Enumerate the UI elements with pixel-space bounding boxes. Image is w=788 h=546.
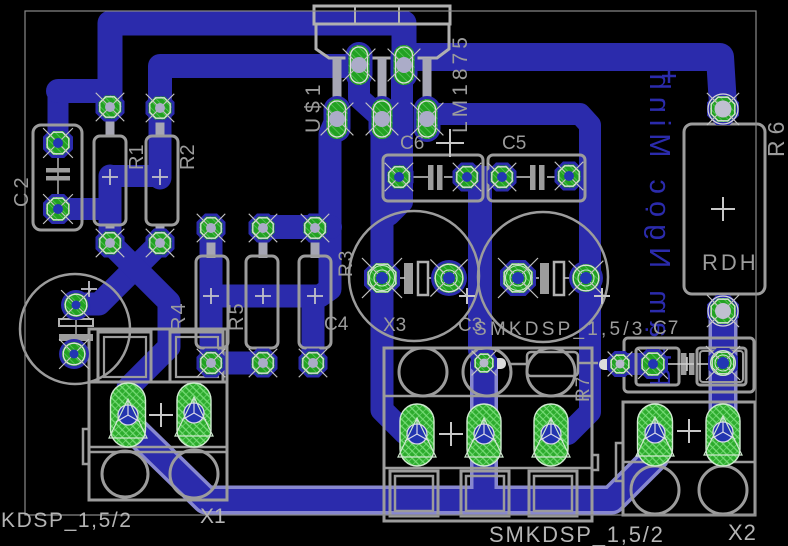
svg-text:R6: R6 <box>763 116 788 157</box>
svg-text:C2: C2 <box>11 173 33 207</box>
svg-text:LM1875: LM1875 <box>449 33 472 133</box>
svg-text:X2: X2 <box>728 520 757 545</box>
svg-text:R3: R3 <box>336 249 357 277</box>
svg-text:KDSP_1,5/2: KDSP_1,5/2 <box>1 509 133 532</box>
svg-text:SMKDSP_1,5/2: SMKDSP_1,5/2 <box>489 522 665 546</box>
svg-text:R5: R5 <box>226 301 248 331</box>
svg-text:R4: R4 <box>168 301 190 331</box>
svg-text:SMKDSP_1,5/3: SMKDSP_1,5/3 <box>474 319 645 340</box>
svg-text:R7: R7 <box>573 376 594 402</box>
svg-text:R2: R2 <box>177 144 199 170</box>
svg-text:X3: X3 <box>383 315 406 336</box>
svg-text:C6: C6 <box>400 133 424 154</box>
svg-text:R1: R1 <box>126 144 148 170</box>
svg-text:U$1: U$1 <box>302 79 325 133</box>
svg-text:C7: C7 <box>653 318 679 339</box>
svg-text:C5: C5 <box>502 133 526 154</box>
svg-text:RDH: RDH <box>702 250 759 275</box>
svg-text:X1: X1 <box>200 505 226 528</box>
svg-text:C4: C4 <box>324 314 349 335</box>
